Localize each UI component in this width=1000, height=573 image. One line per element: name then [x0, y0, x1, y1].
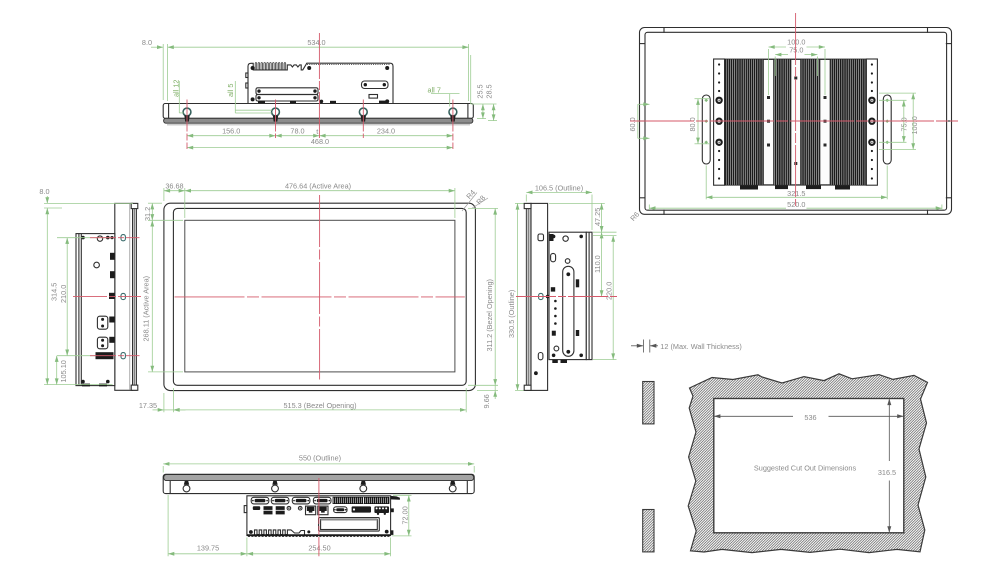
- svg-text:536: 536: [804, 413, 816, 422]
- svg-text:550 (Outline): 550 (Outline): [299, 454, 341, 463]
- svg-text:47.25: 47.25: [593, 208, 602, 226]
- svg-text:75.0: 75.0: [789, 45, 803, 54]
- svg-text:25.5: 25.5: [475, 84, 484, 98]
- svg-text:139.75: 139.75: [197, 544, 219, 553]
- svg-text:105.10: 105.10: [59, 360, 68, 382]
- svg-text:8.0: 8.0: [39, 187, 49, 196]
- svg-text:311.2 (Bezel Opening): 311.2 (Bezel Opening): [485, 279, 494, 351]
- svg-text:60.0: 60.0: [628, 117, 637, 131]
- svg-text:515.3 (Bezel Opening): 515.3 (Bezel Opening): [283, 401, 356, 410]
- svg-text:78.0: 78.0: [290, 126, 304, 135]
- svg-text:31.2: 31.2: [143, 207, 152, 221]
- svg-text:468.0: 468.0: [311, 137, 329, 146]
- svg-text:476.64 (Active Area): 476.64 (Active Area): [285, 182, 351, 191]
- svg-text:12 (Max. Wall Thickness): 12 (Max. Wall Thickness): [660, 342, 742, 351]
- svg-text:Suggested Cut Out Dimensions: Suggested Cut Out Dimensions: [754, 463, 857, 472]
- svg-text:17.35: 17.35: [139, 401, 157, 410]
- svg-text:234.0: 234.0: [377, 126, 395, 135]
- svg-text:72.00: 72.00: [400, 506, 409, 524]
- svg-text:321.5: 321.5: [787, 189, 805, 198]
- svg-text:330.5 (Outline): 330.5 (Outline): [507, 290, 516, 338]
- svg-text:28.5: 28.5: [485, 84, 494, 98]
- svg-text:36.68: 36.68: [165, 182, 183, 191]
- svg-text:210.0: 210.0: [59, 285, 68, 303]
- svg-text:80.0: 80.0: [688, 117, 697, 131]
- svg-text:254.50: 254.50: [308, 544, 330, 553]
- svg-text:220.0: 220.0: [605, 282, 614, 300]
- svg-text:156.0: 156.0: [222, 126, 240, 135]
- svg-text:8.0: 8.0: [142, 38, 152, 47]
- svg-text:110.0: 110.0: [593, 255, 602, 273]
- svg-text:316.5: 316.5: [878, 468, 896, 477]
- svg-text:9.66: 9.66: [482, 394, 491, 408]
- svg-text:all 7: all 7: [428, 85, 441, 94]
- svg-text:all 5: all 5: [226, 84, 235, 97]
- svg-text:106.5 (Outline): 106.5 (Outline): [535, 183, 583, 192]
- svg-text:100.0: 100.0: [910, 116, 919, 134]
- svg-text:268.11 (Active Area): 268.11 (Active Area): [142, 276, 151, 342]
- svg-text:534.0: 534.0: [307, 38, 325, 47]
- svg-text:314.5: 314.5: [50, 283, 59, 301]
- svg-text:t: t: [316, 127, 318, 136]
- svg-text:520.0: 520.0: [787, 200, 805, 209]
